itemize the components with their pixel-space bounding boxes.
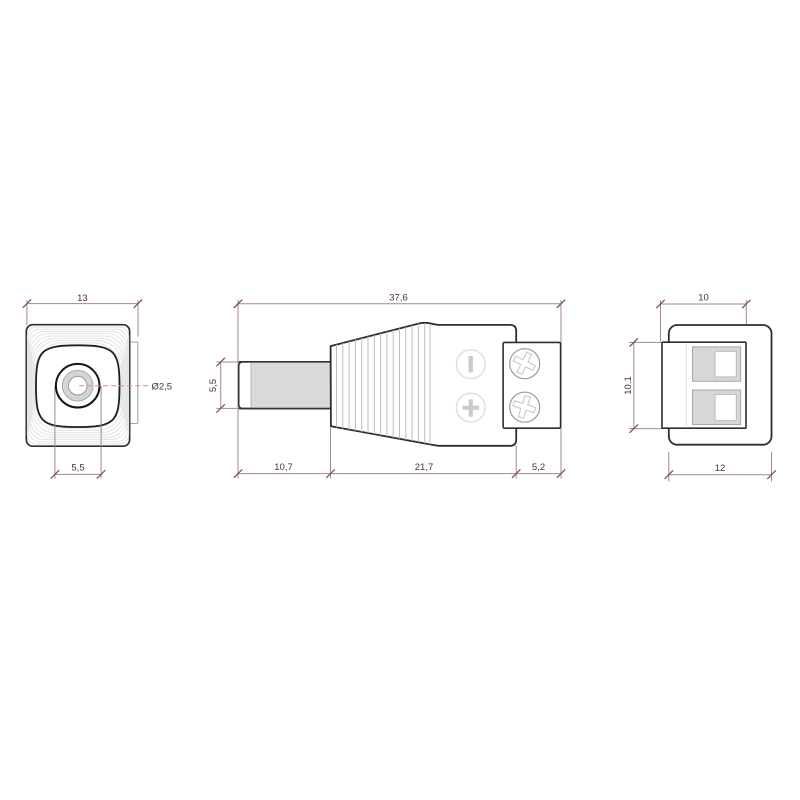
svg-text:10.1: 10.1 (623, 376, 634, 395)
svg-text:12: 12 (715, 463, 726, 474)
svg-text:37,6: 37,6 (389, 292, 408, 303)
svg-text:10,7: 10,7 (274, 462, 293, 473)
svg-text:Ø2,5: Ø2,5 (152, 381, 173, 392)
svg-text:5,2: 5,2 (532, 462, 545, 473)
svg-text:5,5: 5,5 (71, 463, 84, 474)
svg-text:5,5: 5,5 (208, 379, 219, 392)
svg-text:13: 13 (77, 293, 88, 304)
svg-text:10: 10 (698, 293, 709, 304)
svg-text:21,7: 21,7 (415, 462, 434, 473)
